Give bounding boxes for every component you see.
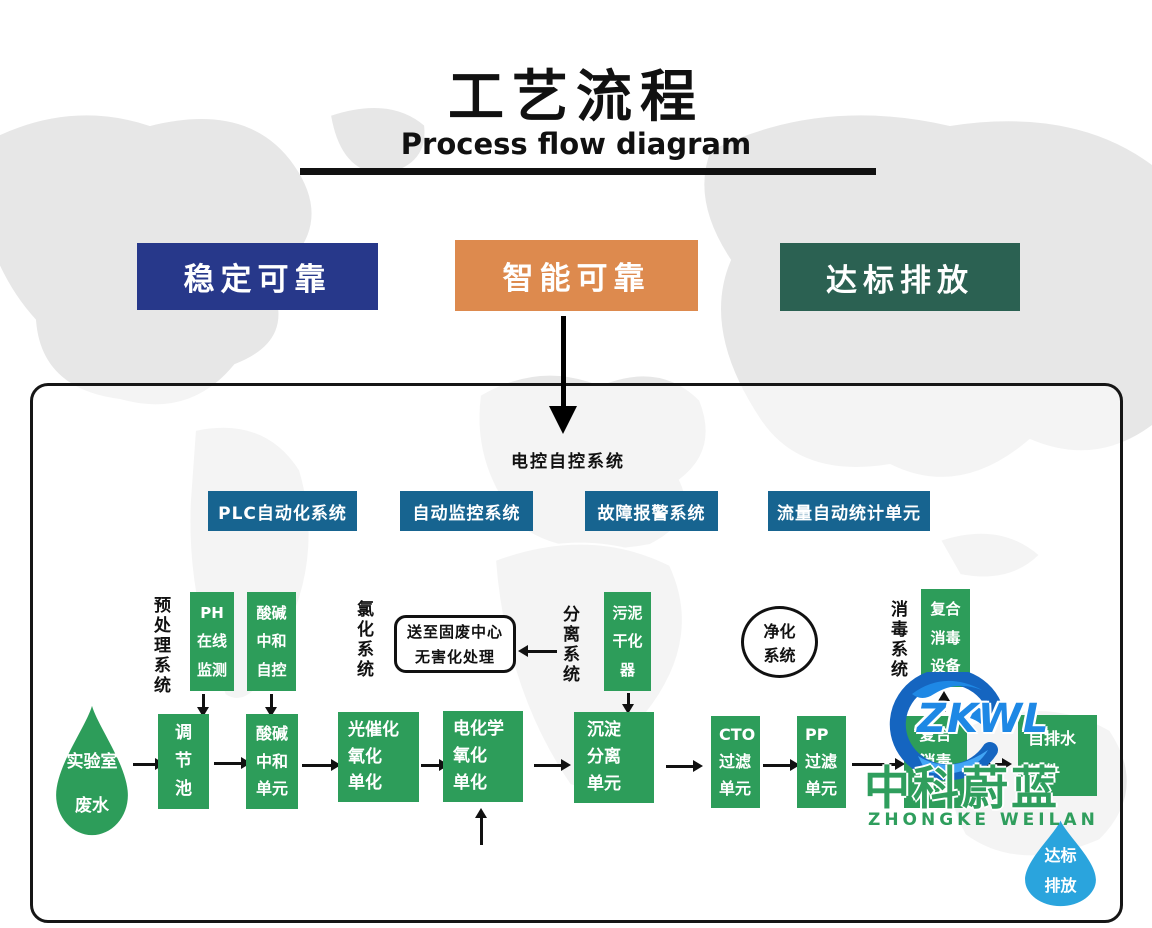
arrow-photocatalytic-to-electrochemical-icon — [421, 764, 440, 767]
box-regulating-tank: 调 节 池 — [158, 714, 209, 809]
button-fault-alarm: 故障报警系统 — [585, 491, 718, 531]
arrow-tank-to-neutralization-icon — [214, 762, 242, 765]
brand-name-english: ZHONGKE WEILAN — [868, 810, 1099, 830]
arrow-ph-to-tank-icon — [202, 694, 205, 708]
box-ph-online-monitoring: PH 在线 监测 — [190, 592, 234, 691]
brand-name-chinese: 中科蔚蓝 — [864, 752, 1060, 818]
arrow-neutralization-to-photocatalytic-icon — [302, 764, 332, 767]
box-photocatalytic-oxidation-unit: 光催化 氧化 单化 — [338, 712, 419, 802]
label-separation-system: 分离系统 — [560, 605, 577, 689]
button-plc-automation: PLC自动化系统 — [208, 491, 357, 531]
source-drop: 实验室 废水 — [53, 702, 131, 838]
circle-purification-system: 净化 系统 — [741, 606, 818, 678]
arrow-electrochemical-to-sedimentation-icon — [534, 764, 562, 767]
process-flow-poster: 工艺流程 Process flow diagram 稳定可靠 智能可靠 达标排放… — [0, 0, 1152, 928]
box-solid-waste-disposal-note: 送至固废中心 无害化处理 — [394, 615, 516, 673]
arrow-dryer-to-sedimentation-icon — [627, 693, 630, 705]
box-pp-filter-unit: PP 过滤 单元 — [797, 716, 846, 808]
box-electrochemical-oxidation-unit: 电化学 氧化 单化 — [443, 711, 523, 802]
box-acid-base-neutralization-unit: 酸碱 中和 单元 — [246, 714, 298, 809]
box-acid-base-neutralization-auto: 酸碱 中和 自控 — [247, 592, 296, 691]
label-chlorination-system: 氯化系统 — [354, 600, 371, 684]
control-system-label: 电控自控系统 — [498, 447, 638, 472]
box-sedimentation-separation-unit: 沉淀 分离 单元 — [574, 712, 654, 803]
arrow-separation-to-note-icon — [527, 650, 557, 653]
arrow-into-electrochemical-icon — [480, 817, 483, 845]
box-cto-filter-unit: CTO 过滤 单元 — [711, 716, 760, 808]
arrow-sedimentation-to-cto-icon — [666, 765, 694, 768]
brand-logo-text: ZKWL — [917, 696, 1050, 742]
button-auto-monitoring: 自动监控系统 — [400, 491, 533, 531]
arrow-source-to-tank-icon — [133, 763, 156, 766]
arrow-auto-to-neutralization-icon — [270, 694, 273, 708]
outlet-drop: 达标 排放 — [1022, 818, 1099, 908]
label-pretreatment-system: 预处理系统 — [151, 596, 168, 696]
button-flow-statistics: 流量自动统计单元 — [768, 491, 930, 531]
box-sludge-dryer: 污泥 干化 器 — [604, 592, 651, 691]
arrow-cto-to-pp-icon — [763, 764, 791, 767]
